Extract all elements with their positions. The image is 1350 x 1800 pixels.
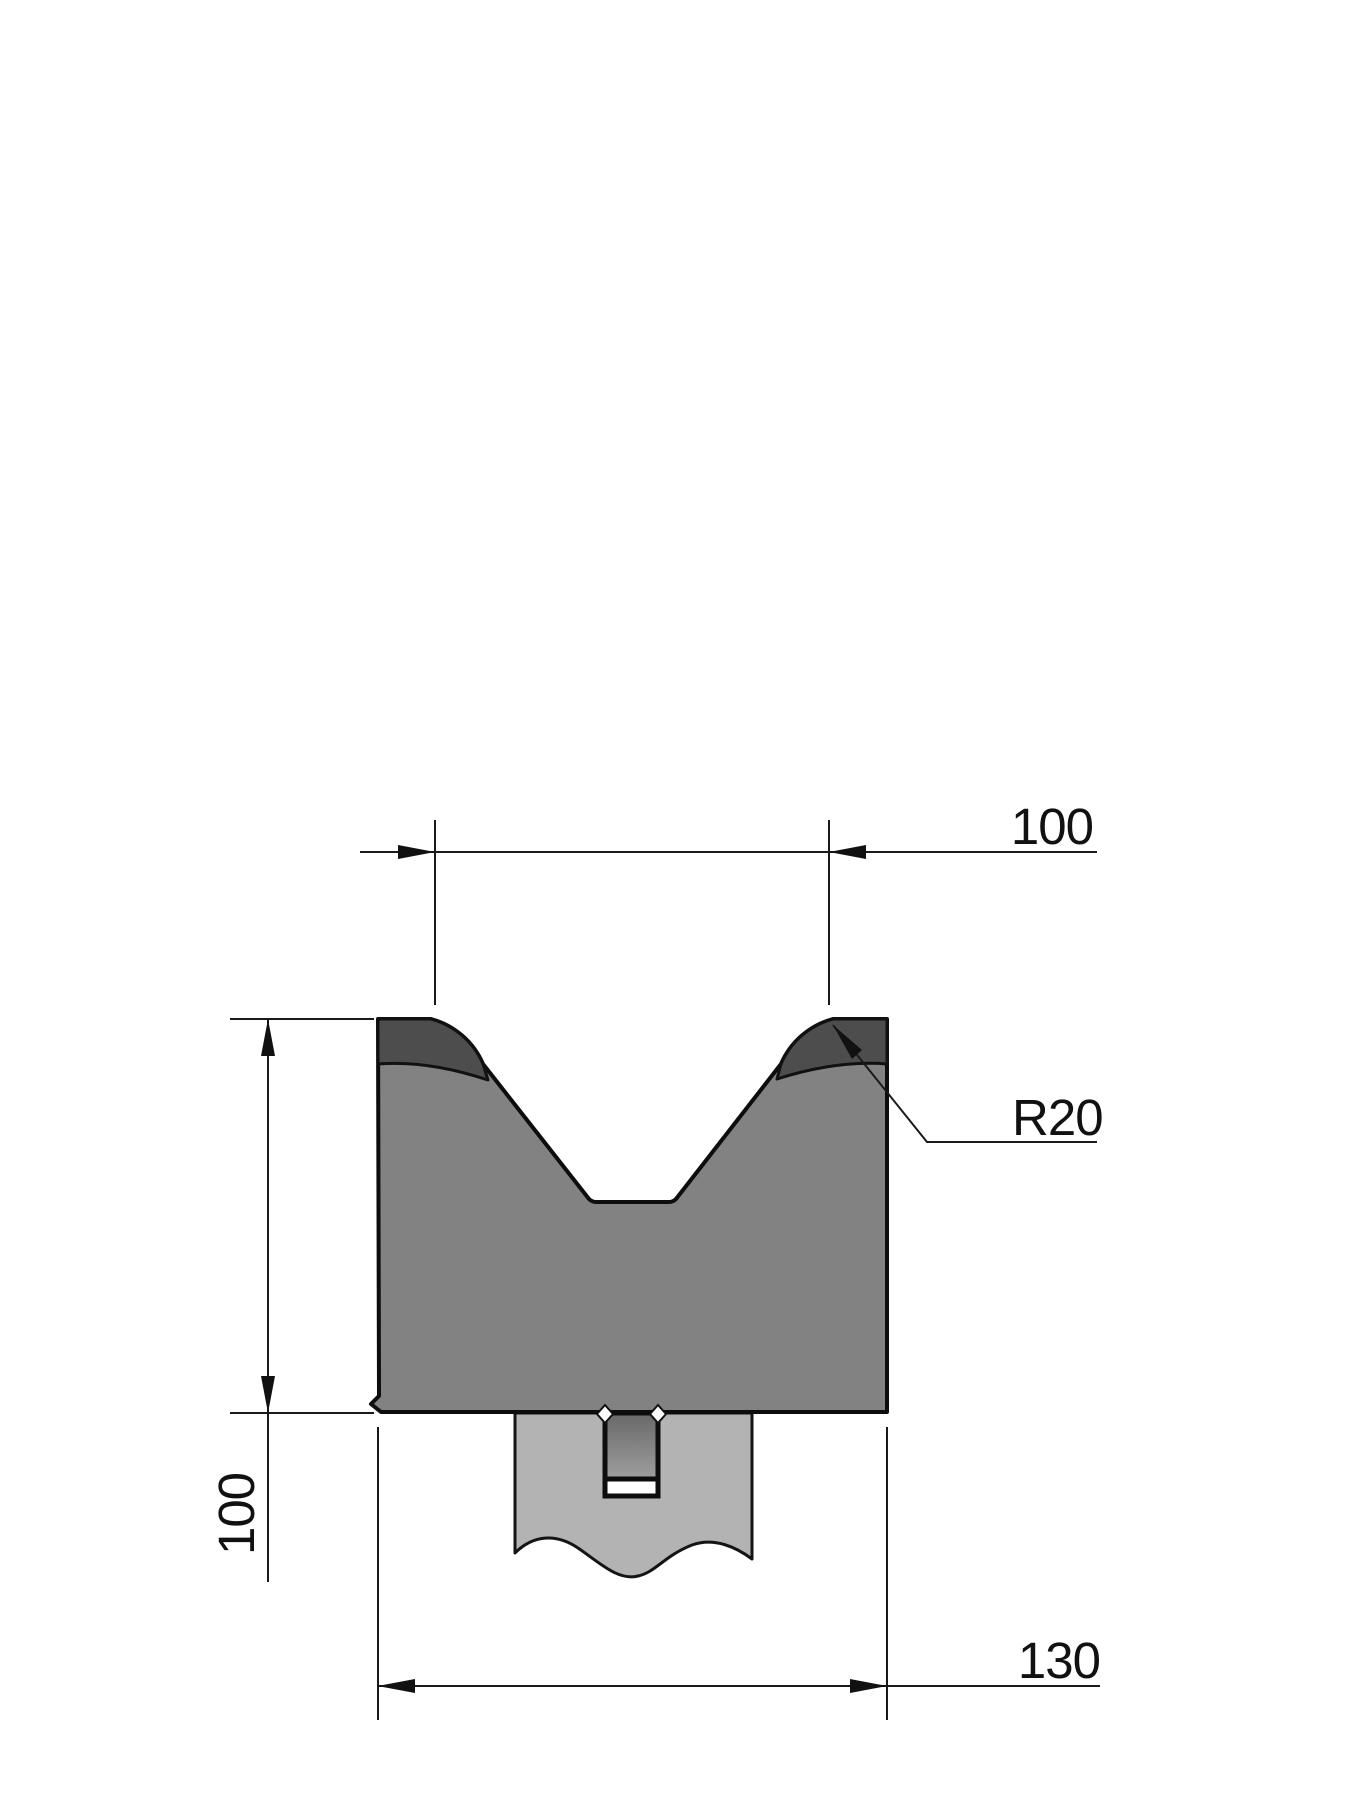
arrowhead: [261, 1019, 275, 1056]
arrowhead: [829, 845, 866, 859]
die-body: [371, 1019, 887, 1412]
die-technical-drawing: 100 100 130 R20: [0, 0, 1350, 1800]
die-tang: [605, 1413, 658, 1479]
arrowhead: [378, 1679, 415, 1693]
technical-drawing-page: 100 100 130 R20: [0, 0, 1350, 1800]
corner-radius-label: R20: [1012, 1089, 1103, 1146]
die-height-label: 100: [208, 1473, 265, 1555]
arrowhead: [261, 1376, 275, 1413]
v-opening-width-label: 100: [1011, 798, 1093, 855]
base-width-label: 130: [1018, 1632, 1100, 1689]
arrowhead: [850, 1679, 887, 1693]
arrowhead: [398, 845, 435, 859]
dimension-v-opening-width: [360, 820, 1097, 1005]
